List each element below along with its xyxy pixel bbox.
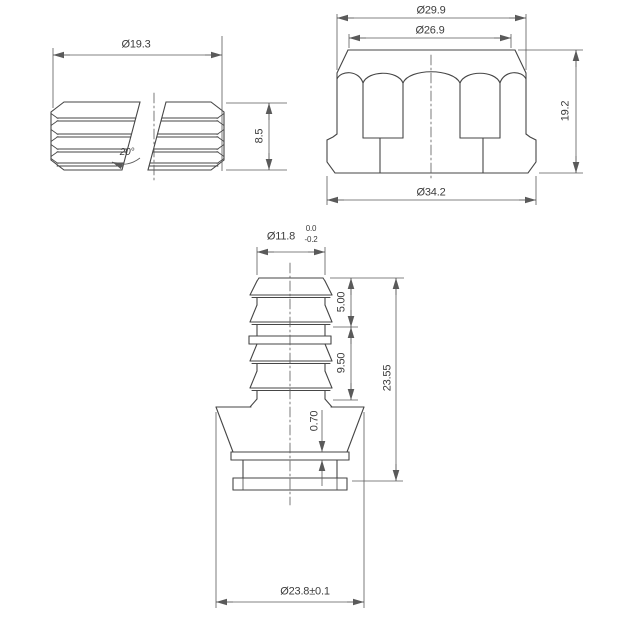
nut-dimensions: [327, 14, 583, 205]
dim-split-ring-gap-angle: 20°: [120, 148, 135, 158]
dim-fitting-stem-tol-upper: 0.0: [306, 225, 317, 233]
dim-fitting-stem-tol-lower: -0.2: [305, 236, 318, 244]
dim-fitting-base-diameter: Ø23.8±0.1: [280, 587, 330, 598]
nut-view: [327, 50, 536, 181]
dim-fitting-lower-barb-length: 9.50: [337, 353, 348, 374]
split-ring-dimensions: [53, 36, 287, 171]
dim-nut-base-diameter: Ø34.2: [417, 188, 446, 199]
dim-split-ring-outer-diameter: Ø19.3: [122, 40, 151, 51]
dim-fitting-collar-thickness: 0.70: [310, 411, 321, 432]
dim-fitting-overall-length: 23.55: [383, 365, 394, 392]
dim-fitting-stem-diameter: Ø11.8: [267, 232, 295, 243]
dim-nut-height: 19.2: [561, 101, 572, 122]
dim-nut-top-face-diameter: Ø26.9: [416, 26, 445, 37]
dim-nut-top-outer-diameter: Ø29.9: [417, 6, 446, 17]
dim-fitting-upper-barb-length: 5.00: [337, 292, 348, 313]
dim-split-ring-height: 8.5: [255, 129, 266, 144]
technical-drawing-canvas: Ø19.3 8.5 20° Ø29.9 Ø26.9 19.2 Ø34.2 Ø11…: [0, 0, 630, 630]
split-ring-view: [51, 93, 224, 181]
drawing-linework: [0, 0, 630, 630]
